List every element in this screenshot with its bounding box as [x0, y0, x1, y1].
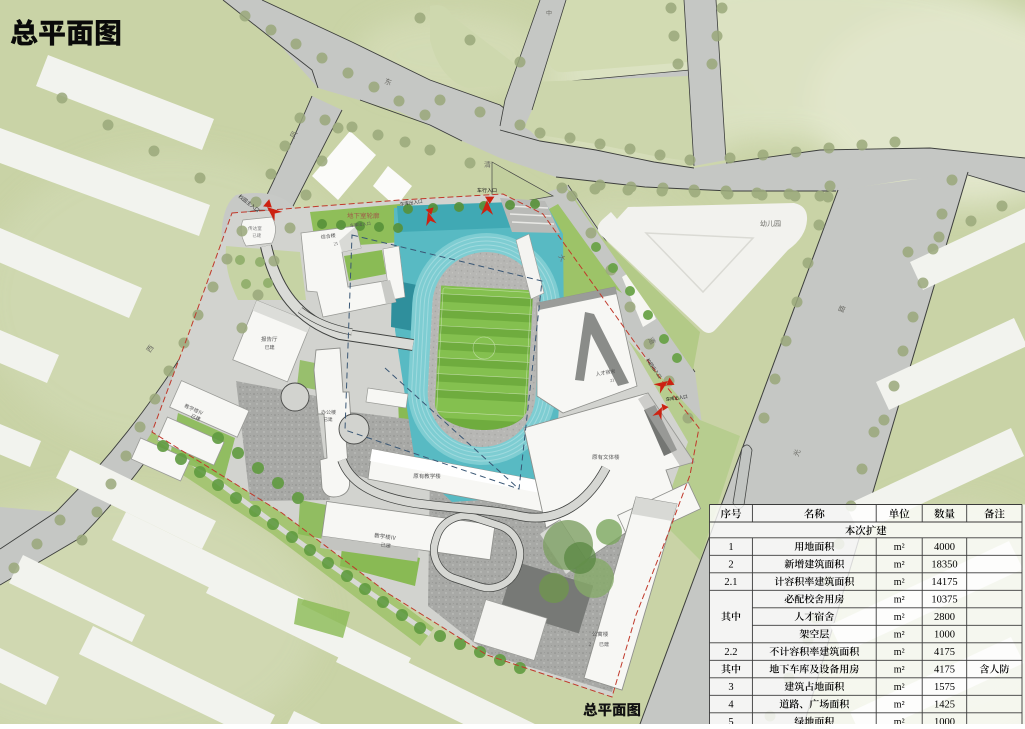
- svg-text:2.1: 2.1: [724, 577, 737, 588]
- svg-text:4000: 4000: [934, 542, 955, 553]
- svg-text:m²: m²: [894, 647, 905, 658]
- svg-text:m²: m²: [894, 665, 905, 676]
- svg-text:m²: m²: [894, 682, 905, 693]
- svg-text:1575: 1575: [934, 682, 955, 693]
- svg-text:m²: m²: [894, 700, 905, 711]
- svg-text:m²: m²: [894, 560, 905, 571]
- svg-text:2.2: 2.2: [724, 647, 737, 658]
- svg-text:5: 5: [728, 717, 733, 724]
- svg-text:3: 3: [728, 682, 733, 693]
- svg-text:1425: 1425: [934, 700, 955, 711]
- svg-text:4175: 4175: [934, 665, 955, 676]
- svg-text:1000: 1000: [934, 630, 955, 641]
- svg-text:m²: m²: [894, 612, 905, 623]
- svg-text:m²: m²: [894, 577, 905, 588]
- svg-text:m²: m²: [894, 630, 905, 641]
- svg-text:1: 1: [728, 542, 733, 553]
- svg-text:1000: 1000: [934, 717, 955, 724]
- svg-text:2800: 2800: [934, 612, 955, 623]
- svg-text:10375: 10375: [931, 595, 957, 606]
- svg-text:4175: 4175: [934, 647, 955, 658]
- svg-text:4: 4: [728, 700, 734, 711]
- svg-text:m²: m²: [894, 542, 905, 553]
- svg-text:18350: 18350: [931, 560, 957, 571]
- svg-text:14175: 14175: [931, 577, 957, 588]
- svg-text:m²: m²: [894, 717, 905, 724]
- svg-text:m²: m²: [894, 595, 905, 606]
- svg-text:2: 2: [728, 560, 733, 571]
